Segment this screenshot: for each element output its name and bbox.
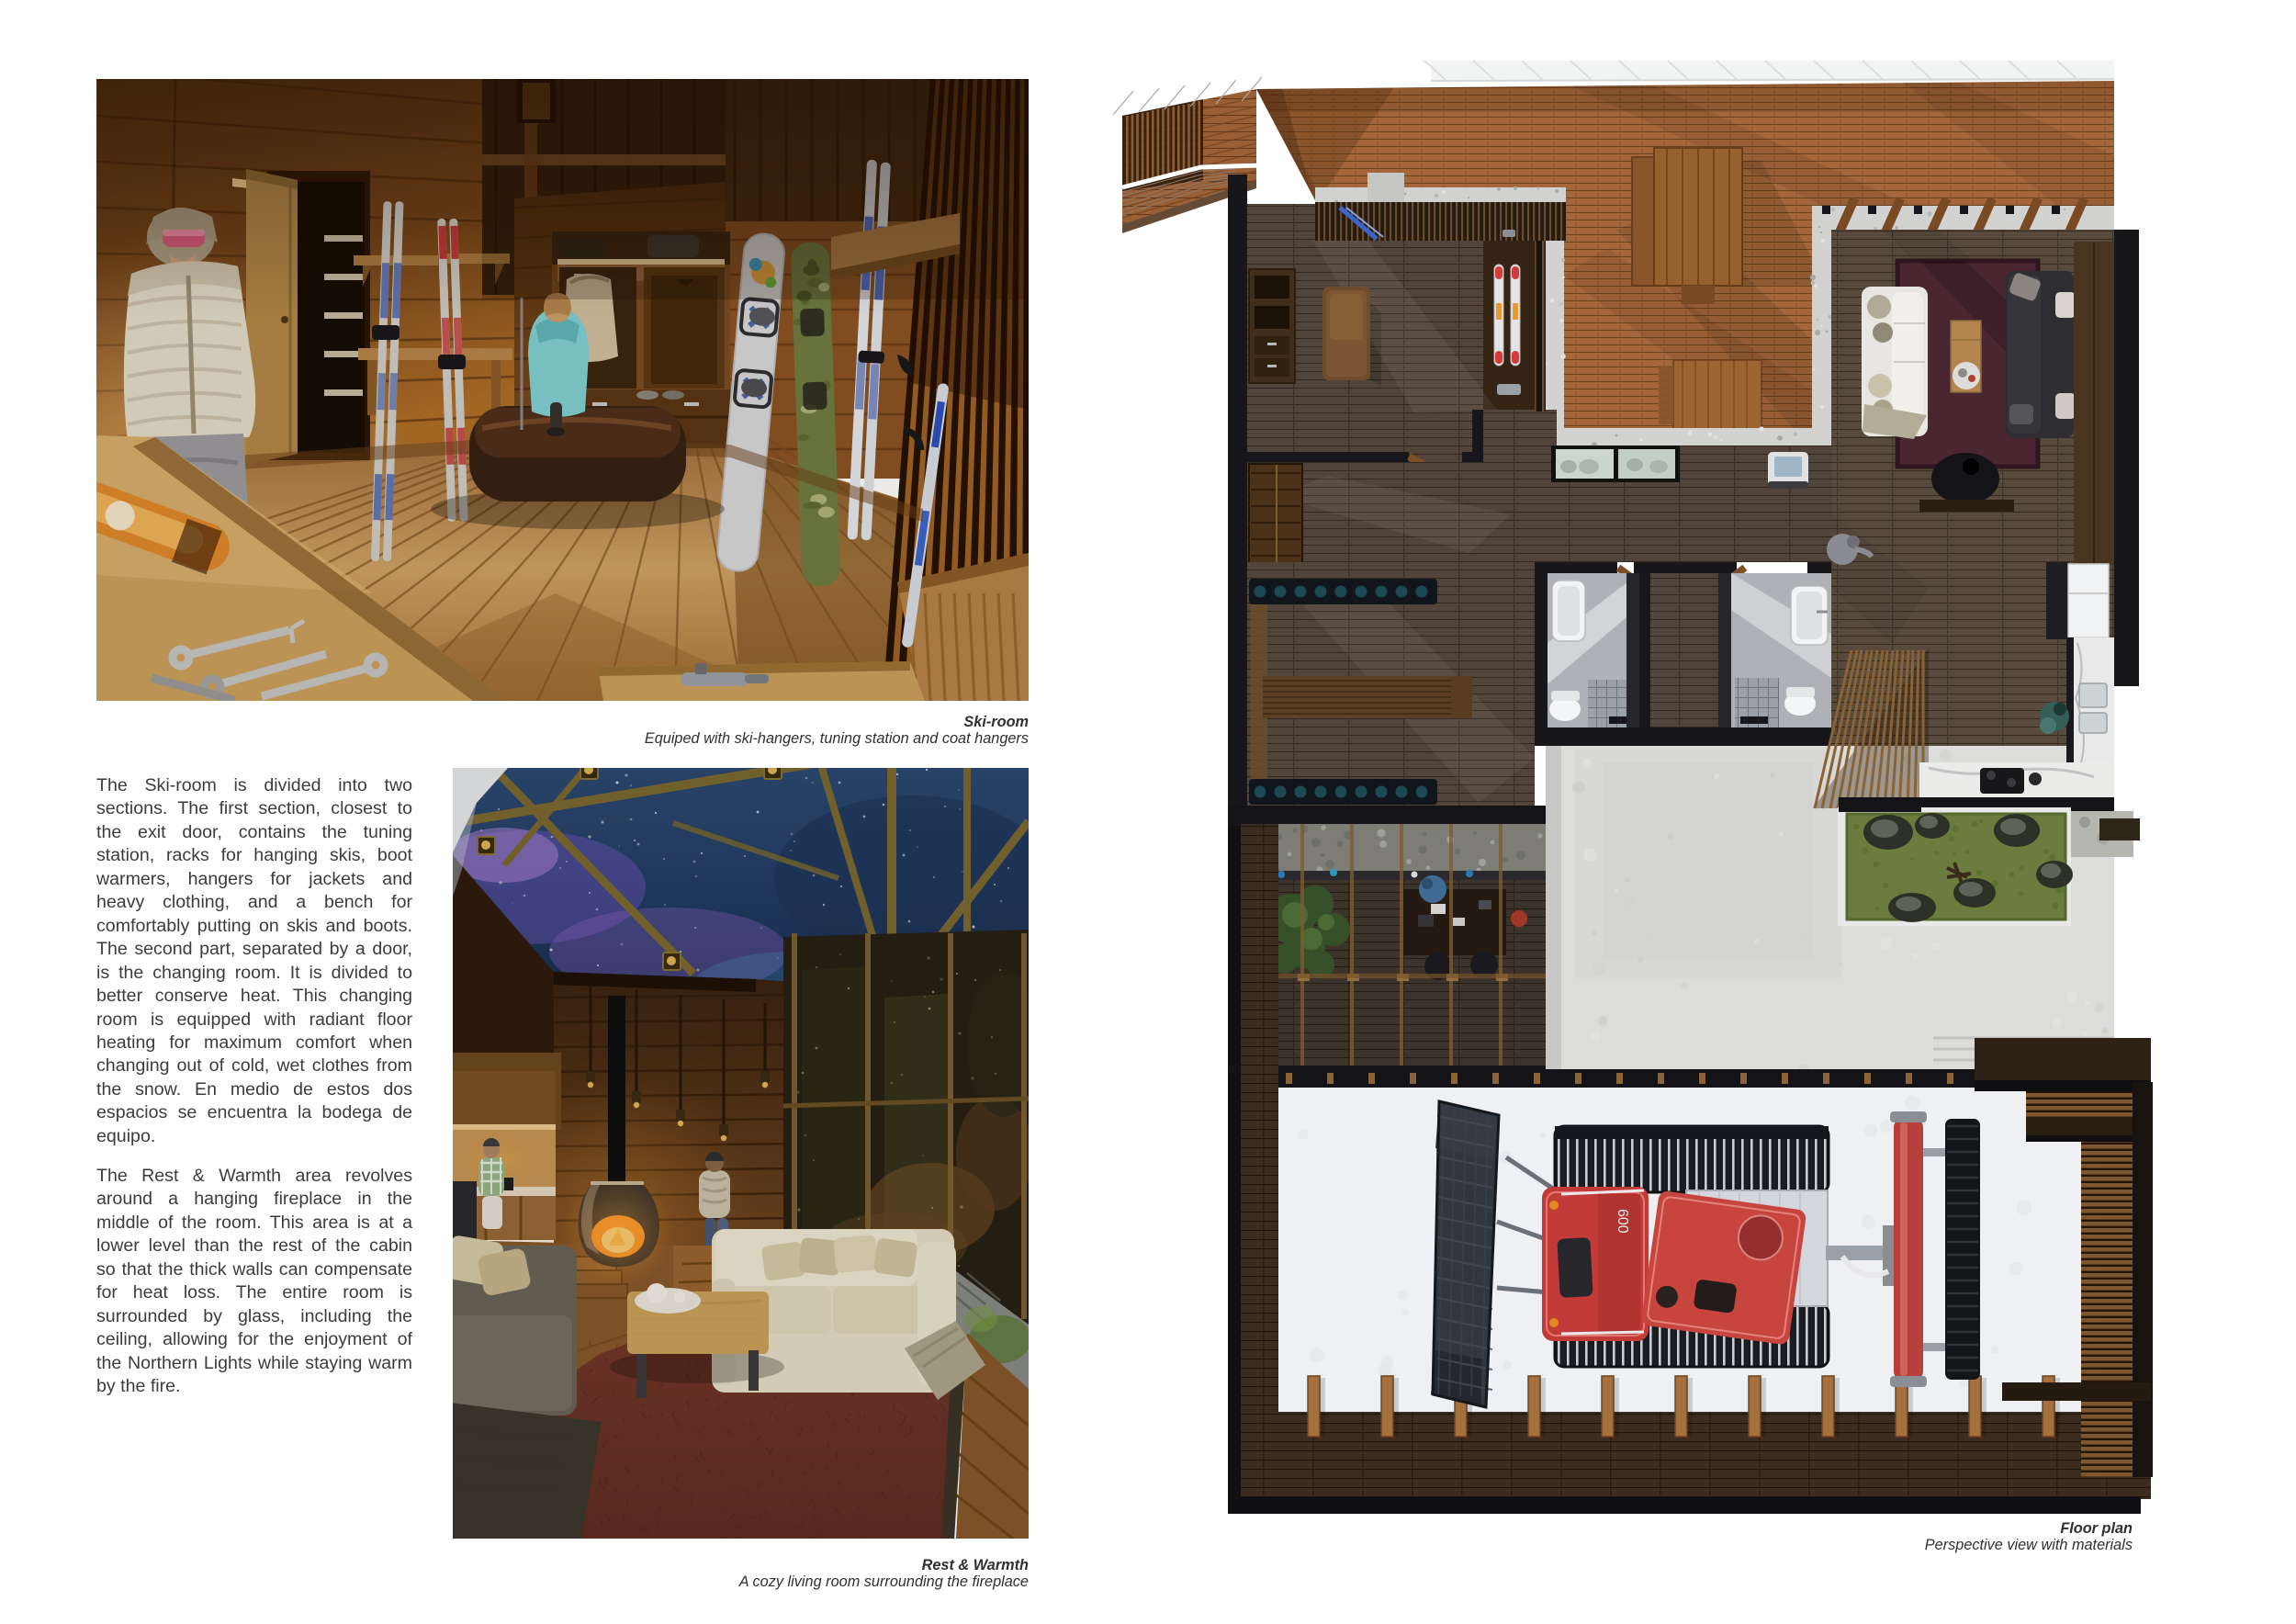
svg-text:600: 600 bbox=[1615, 1209, 1630, 1234]
